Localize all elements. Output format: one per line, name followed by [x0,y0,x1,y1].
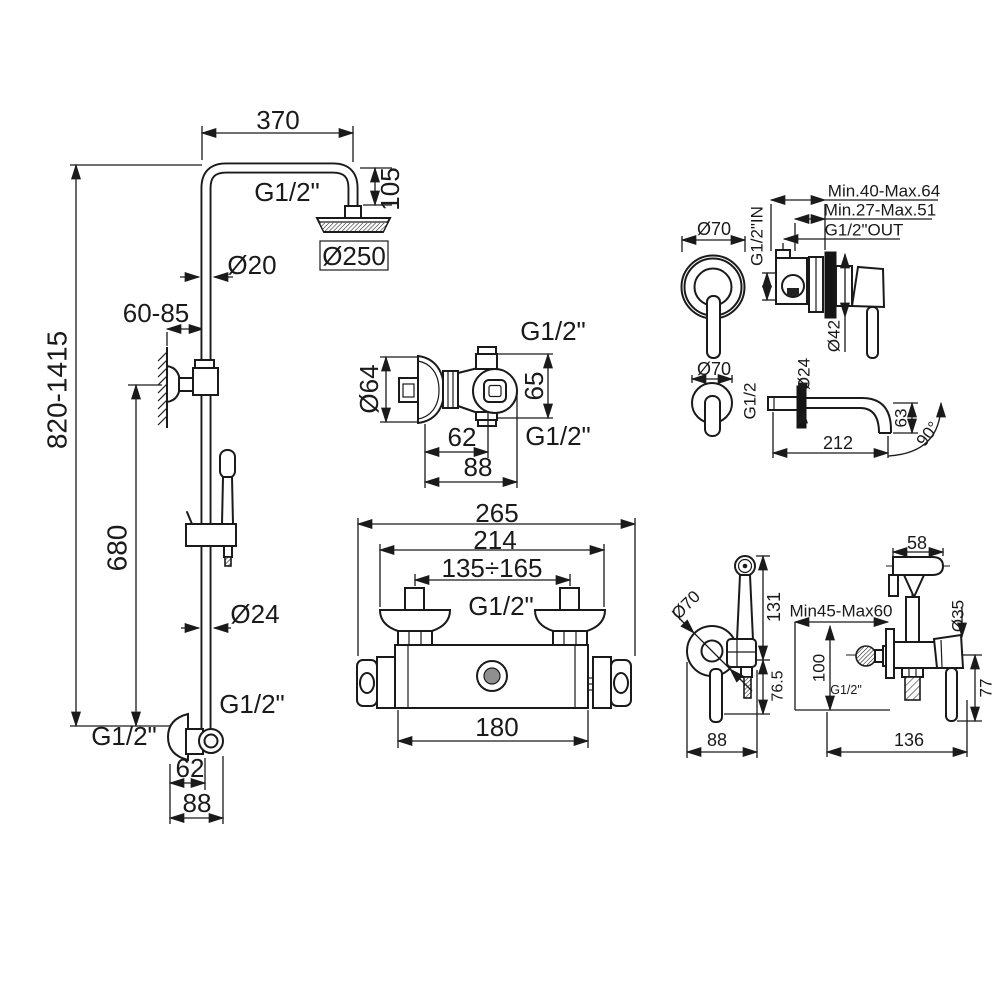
dim-valve-flange: Ø64 [354,364,384,413]
label-valve-thread-bottom: G1/2" [525,421,591,451]
shower-column-view: 370 G1/2" 105 Ø250 Ø20 60-85 820-1415 68… [42,105,406,824]
bidet-valve-body [893,642,939,668]
dim-arm-width: 370 [256,105,299,135]
label-valve-thread-top: G1/2" [520,316,586,346]
dim-plate-diameter: Ø42 [825,320,844,352]
bidet-shower-view: 58 131 Ø70 76.5 88 Min45-Max60 100 G1/2"… [668,533,996,758]
dim-valve-overall: 88 [464,452,493,482]
technical-drawing-page: 370 G1/2" 105 Ø250 Ø20 60-85 820-1415 68… [0,0,1000,1000]
dim-mixer-overall: 265 [475,498,518,528]
shower-valve-view: G1/2" Ø64 65 62 G1/2" 88 [354,316,591,488]
bidet-side [846,557,972,721]
left-handle [377,657,395,708]
dim-head-offset: 105 [375,167,405,210]
dim-depth-outer: Min.40-Max.64 [828,182,940,201]
dim-bidet-handle-drop: 77 [977,679,996,698]
dim-bidet-width-left: 88 [707,730,727,750]
dim-bidet-height: 100 [810,654,829,682]
dim-bracket-range: 60-85 [123,298,190,328]
dim-head-diameter: Ø250 [322,241,386,271]
concealed-mixer-view: Min.40-Max.64 Min.27-Max.51 G1/2"OUT G1/… [682,182,941,359]
sprayer-head [893,557,943,575]
lever-front [707,296,720,358]
label-outlet-thread: G1/2"OUT [825,221,904,240]
dim-spout-escutcheon: Ø70 [697,359,731,379]
dim-bidet-holder: Ø35 [949,600,968,632]
dim-rail-diameter: Ø24 [230,599,279,629]
valve-body [399,347,517,426]
dim-bidet-head: 58 [907,533,927,553]
dim-bidet-lower: 76.5 [770,670,787,701]
label-inlet-thread: G1/2" [91,721,157,751]
dim-pipe-diameter: Ø20 [227,250,276,280]
dim-spout-length: 212 [823,433,853,453]
dim-bidet-upper: 131 [764,592,784,622]
dim-elbow-overall: 88 [183,788,212,818]
dim-spout-drop: 63 [892,409,911,428]
dim-depth-inner: Min.27-Max.51 [824,201,936,220]
dim-bidet-escutcheon: Ø70 [668,587,704,623]
wall-plate [825,252,836,318]
fixtures-dimension-drawing: 370 G1/2" 105 Ø250 Ø20 60-85 820-1415 68… [0,0,1000,1000]
concealed-front [682,256,745,359]
dim-escutcheon-concealed: Ø70 [697,219,731,239]
fixing-screw [905,677,920,700]
dim-bidet-depth-range: Min45-Max60 [790,602,893,621]
dim-lower-height: 680 [102,525,133,572]
dim-mixer-union: 214 [473,525,516,555]
spout-front [692,383,732,436]
dim-valve-depth: 62 [448,422,477,452]
dim-total-height: 820-1415 [42,331,73,449]
wall-spout-view: Ø70 G1/2 Ø24 63 212 90° [692,358,943,458]
dim-mixer-body: 180 [475,712,518,742]
lever-side [867,307,878,358]
bidet-front [687,556,756,722]
mixer-body [357,645,631,708]
spout-side [768,386,891,433]
stop-valve-wheel [856,646,876,666]
label-bidet-thread: G1/2" [830,683,862,697]
dim-mixer-centers: 135÷165 [441,553,542,583]
spout-flange [797,386,806,428]
dim-spout-tube: Ø24 [795,358,814,390]
label-mixer-thread: G1/2" [468,591,534,621]
label-hose-thread: G1/2" [219,689,285,719]
dim-bidet-width-right: 136 [894,730,924,750]
holder-cup [934,635,963,668]
thermostatic-mixer-view: 265 214 135÷165 G1/2" 180 [357,498,635,748]
dim-valve-offset: 65 [519,372,549,401]
bidet-lever-front [710,669,722,722]
right-handle [593,657,611,708]
label-thread-top: G1/2" [254,177,320,207]
dim-elbow-depth: 62 [176,753,205,783]
bidet-handle-side [946,668,957,721]
label-spout-thread: G1/2 [741,383,760,420]
label-inlet-thread-concealed: G1/2"IN [748,206,767,266]
